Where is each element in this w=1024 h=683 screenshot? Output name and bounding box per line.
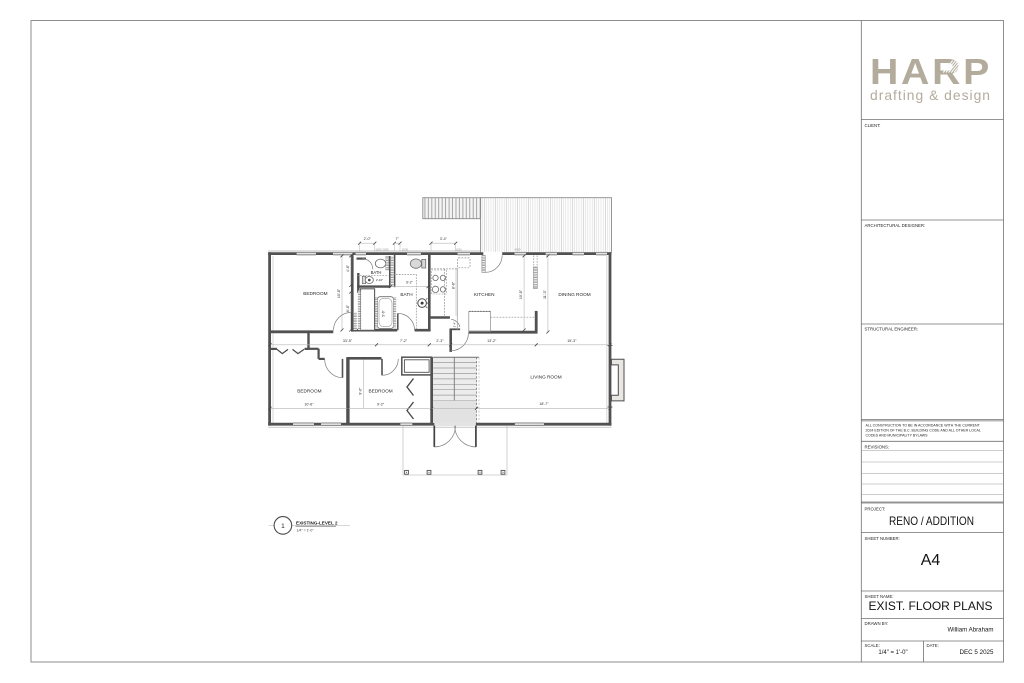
svg-text:1/4" = 1'-0": 1/4" = 1'-0" bbox=[297, 528, 315, 532]
svg-text:9'-0": 9'-0" bbox=[358, 387, 362, 395]
svg-text:REVISIONS:: REVISIONS: bbox=[865, 445, 890, 450]
svg-text:2'-10": 2'-10" bbox=[376, 278, 383, 282]
svg-text:2030: 2030 bbox=[402, 248, 409, 252]
svg-text:BEDROOM: BEDROOM bbox=[303, 291, 327, 296]
svg-text:STRUCTURAL ENGINEER:: STRUCTURAL ENGINEER: bbox=[865, 327, 919, 332]
svg-text:SHEET NUMBER:: SHEET NUMBER: bbox=[865, 536, 900, 541]
svg-text:CODES AND MUNICIPALITY BYLAWS: CODES AND MUNICIPALITY BYLAWS bbox=[866, 433, 929, 437]
svg-text:9'-2": 9'-2" bbox=[377, 402, 385, 406]
svg-text:5'-6": 5'-6" bbox=[382, 309, 386, 316]
svg-text:EXISTING-LEVEL 2: EXISTING-LEVEL 2 bbox=[296, 520, 338, 525]
svg-text:EXIST. FLOOR PLANS: EXIST. FLOOR PLANS bbox=[869, 601, 993, 613]
svg-text:1: 1 bbox=[281, 523, 285, 530]
svg-text:2'-4": 2'-4" bbox=[452, 322, 456, 328]
svg-text:10'-8": 10'-8" bbox=[337, 288, 341, 298]
svg-text:LIVING ROOM: LIVING ROOM bbox=[530, 375, 561, 380]
svg-text:10'-6": 10'-6" bbox=[304, 402, 314, 406]
svg-text:1830 2030: 1830 2030 bbox=[375, 248, 389, 252]
svg-text:HARP: HARP bbox=[870, 51, 992, 92]
svg-text:CLIENT:: CLIENT: bbox=[865, 123, 881, 128]
svg-text:18'-7": 18'-7" bbox=[539, 402, 549, 406]
svg-text:4'-8": 4'-8" bbox=[346, 264, 350, 272]
svg-text:RENO / ADDITION: RENO / ADDITION bbox=[889, 514, 974, 528]
svg-text:ALL CONSTRUCTION TO BE IN ACCO: ALL CONSTRUCTION TO BE IN ACCORDANCE WIT… bbox=[866, 423, 981, 427]
svg-text:SCALE:: SCALE: bbox=[865, 643, 880, 648]
svg-text:DINING ROOM: DINING ROOM bbox=[558, 292, 590, 297]
svg-text:BATH: BATH bbox=[371, 270, 382, 275]
svg-text:2'-0": 2'-0" bbox=[364, 237, 372, 241]
svg-text:BEDROOM: BEDROOM bbox=[368, 389, 392, 394]
svg-text:ARCHITECTURAL DESIGNER:: ARCHITECTURAL DESIGNER: bbox=[865, 223, 926, 228]
svg-text:3'-4": 3'-4" bbox=[440, 237, 448, 241]
svg-text:DATE:: DATE: bbox=[927, 643, 939, 648]
svg-text:15'-3": 15'-3" bbox=[567, 339, 577, 343]
svg-text:KITCHEN: KITCHEN bbox=[474, 292, 495, 297]
svg-text:William Abraham: William Abraham bbox=[948, 627, 994, 634]
svg-text:7'-2": 7'-2" bbox=[400, 339, 408, 343]
svg-text:10'-8": 10'-8" bbox=[519, 289, 523, 299]
svg-text:BEDROOM: BEDROOM bbox=[297, 389, 321, 394]
svg-text:11'-3": 11'-3" bbox=[543, 289, 547, 299]
svg-text:33'-5": 33'-5" bbox=[343, 339, 353, 343]
svg-text:A4: A4 bbox=[921, 552, 941, 569]
svg-text:6'-8": 6'-8" bbox=[346, 304, 350, 312]
svg-text:2'-3": 2'-3" bbox=[436, 339, 444, 343]
svg-text:BATH: BATH bbox=[400, 292, 412, 297]
svg-text:6'-2": 6'-2" bbox=[406, 281, 413, 285]
svg-text:DEC 5 2025: DEC 5 2025 bbox=[960, 649, 994, 656]
svg-text:PROJECT:: PROJECT: bbox=[865, 507, 886, 512]
svg-text:2024 EDITION OF THE B.C. BUILD: 2024 EDITION OF THE B.C. BUILDING CODE A… bbox=[866, 428, 981, 432]
svg-text:13'-2": 13'-2" bbox=[487, 339, 497, 343]
svg-text:drafting & design: drafting & design bbox=[870, 88, 991, 103]
svg-text:1/4" = 1'-0": 1/4" = 1'-0" bbox=[878, 650, 907, 656]
svg-text:1630: 1630 bbox=[455, 248, 462, 252]
svg-text:4630: 4630 bbox=[514, 248, 521, 252]
svg-text:DRAWN BY:: DRAWN BY: bbox=[865, 621, 889, 626]
svg-text:8'-8": 8'-8" bbox=[451, 281, 455, 289]
svg-text:SHEET NAME:: SHEET NAME: bbox=[865, 594, 894, 599]
